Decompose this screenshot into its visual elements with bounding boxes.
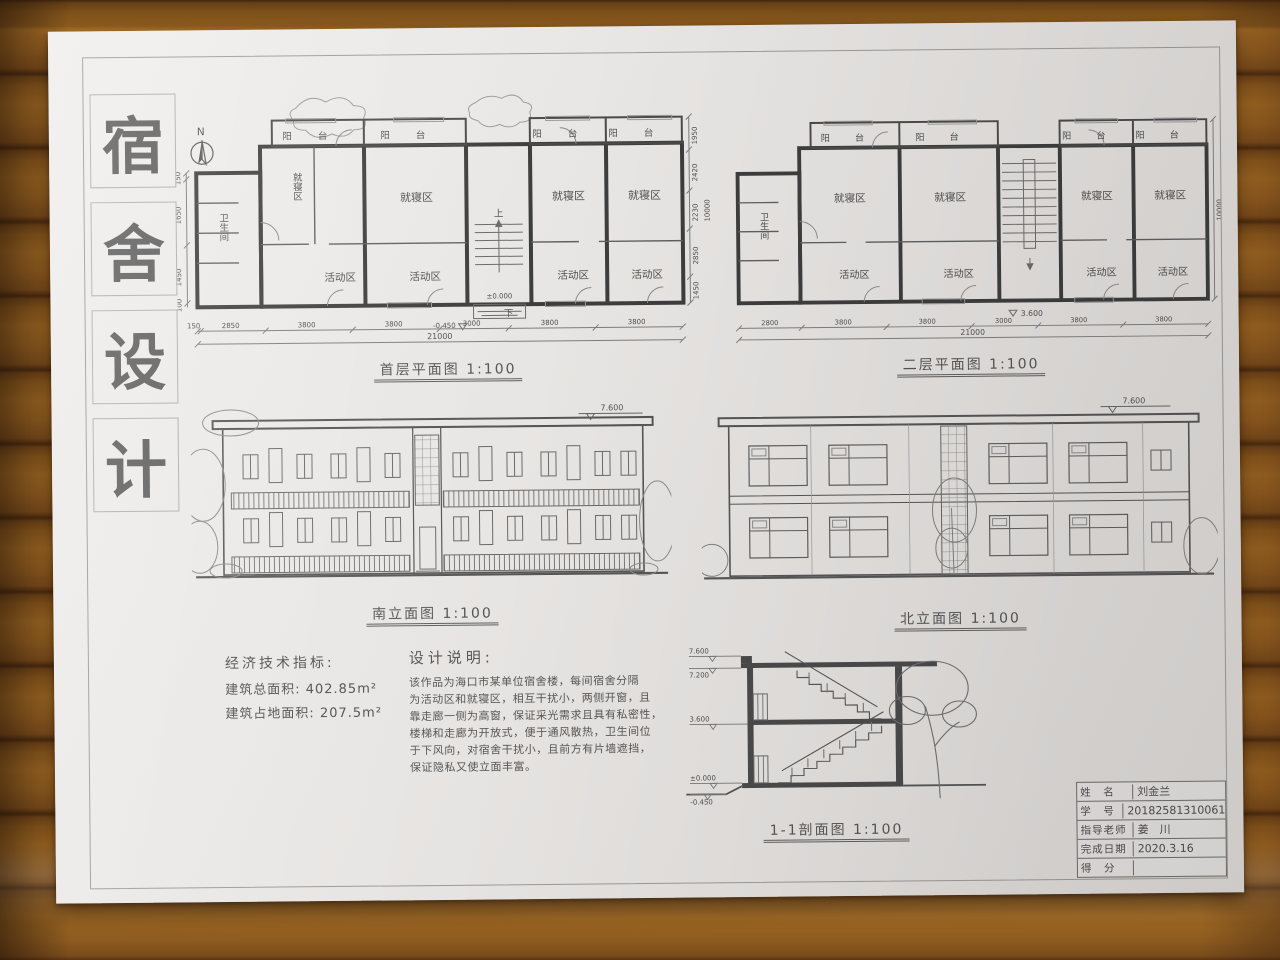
dim: 3800 (919, 318, 936, 326)
plan2-caption: 二层平面图 1:100 (720, 351, 1222, 376)
notes-heading: 设计说明: (409, 645, 689, 669)
second-floor-plan: 就寝区 就寝区 就寝区 就寝区 活动区 活动区 活动区 活动区 卫生间 阳台 阳… (718, 93, 1222, 350)
room-label-bath: 卫生间 (217, 213, 229, 242)
first-floor-plan-block: N (175, 90, 718, 381)
title-block-row: 姓 名 刘金兰 (1077, 781, 1225, 801)
dim: 3800 (385, 320, 403, 328)
north-elevation-block: 7.600 北立面图 1:100 (700, 388, 1218, 631)
section-block: 7.600 7.200 3.600 ±0.000 -0.450 1-1剖面图 1… (685, 626, 987, 841)
field-label: 完成日期 (1078, 841, 1134, 857)
dim-total-right: 10000 (1215, 199, 1221, 221)
room-label-balcony: 阳台 (380, 129, 451, 142)
sheet-border: 宿 舍 设 计 N (82, 46, 1228, 889)
dim: 150 (175, 172, 182, 185)
design-notes: 设计说明: 该作品为海口市某单位宿舍楼，每间宿舍分隔 为活动区和就寝区，相互干扰… (409, 645, 690, 777)
stair (1002, 159, 1057, 270)
dim: 1450 (692, 282, 700, 300)
room-label-sleep: 就寝区 (1081, 189, 1113, 202)
sheet-title-char: 宿 (89, 93, 176, 188)
compass-label: N (197, 126, 205, 138)
doors (260, 127, 664, 307)
field-value: 20182581310061 (1123, 803, 1225, 817)
field-label: 学 号 (1077, 803, 1123, 818)
dim: 150 (187, 322, 200, 330)
room-label-balcony: 阳台 (532, 127, 603, 140)
field-value: 2020.3.16 (1134, 841, 1226, 855)
room-label-sleep: 就寝区 (1154, 189, 1186, 202)
drawing-sheet: 宿 舍 设 计 N (48, 20, 1244, 903)
dim-total-right: 10000 (703, 199, 711, 221)
room-label-sleep: 就寝区 (400, 190, 433, 204)
dim: 1450 (175, 269, 183, 287)
second-floor-plan-block: 就寝区 就寝区 就寝区 就寝区 活动区 活动区 活动区 活动区 卫生间 阳台 阳… (718, 93, 1223, 376)
room-label-bath: 卫生间 (758, 212, 770, 241)
north-arrow-icon (191, 140, 213, 164)
room-label-activity: 活动区 (557, 270, 589, 282)
level-roof: 7.600 (600, 403, 623, 412)
level-mark (1009, 310, 1017, 316)
room-label-balcony: 阳台 (282, 130, 353, 143)
dim: 2800 (761, 319, 778, 327)
field-label: 指导老师 (1077, 822, 1133, 838)
section-level: ±0.000 (690, 774, 716, 782)
lower-windows (243, 509, 636, 547)
section-structure (741, 654, 938, 788)
title-block-row: 学 号 20182581310061 (1077, 800, 1225, 820)
dim: 2850 (222, 322, 240, 330)
stair-up-label: 上 (494, 208, 504, 219)
north-elevation: 7.600 (700, 388, 1218, 605)
dim: 1950 (691, 127, 699, 145)
plan-partitions (196, 143, 683, 264)
section-level: 7.200 (689, 671, 709, 679)
dim: 3800 (835, 318, 852, 326)
room-label-sleep: 就寝区 (552, 189, 585, 203)
south-elevation: 7.600 (190, 393, 672, 600)
indicator-line: 建筑总面积: 402.85m² (225, 678, 382, 699)
room-label-sleep: 就寝区 (834, 192, 866, 205)
room-label-activity: 活动区 (1158, 266, 1188, 278)
sheet-title-char: 舍 (90, 201, 177, 296)
notes-line: 保证隐私又使立面丰富。 (410, 757, 690, 777)
dim: 3800 (628, 318, 646, 326)
field-value: 刘金兰 (1133, 782, 1225, 799)
level-roof: 7.600 (1122, 396, 1145, 405)
stair-glazing (941, 426, 968, 574)
dim: 100 (175, 299, 183, 312)
room-label-activity: 活动区 (324, 272, 356, 284)
level-floor2: 3.600 (1021, 309, 1043, 318)
section-drawing: 7.600 7.200 3.600 ±0.000 -0.450 (685, 626, 987, 815)
room-label-sleep: 就寝区 (934, 191, 966, 204)
plan-partitions (738, 198, 1208, 260)
section-level: -0.450 (690, 798, 713, 806)
corridor-rails (753, 694, 768, 783)
field-value (1134, 866, 1226, 867)
title-block-row: 得 分 (1078, 857, 1226, 876)
dim: 2420 (691, 164, 699, 182)
south-elevation-block: 7.600 南立面图 1:100 (190, 393, 672, 626)
sheet-title: 宿 舍 设 计 (85, 93, 179, 526)
economic-indicators: 经济技术指标: 建筑总面积: 402.85m² 建筑占地面积: 207.5m² (225, 652, 382, 727)
dim: 2230 (692, 204, 700, 222)
dim-total: 21000 (427, 332, 453, 341)
stairs (777, 651, 884, 783)
level-zero: ±0.000 (486, 292, 512, 300)
title-block-row: 完成日期 2020.3.16 (1078, 838, 1226, 858)
room-label-activity: 活动区 (409, 271, 441, 283)
first-floor-plan: N (175, 90, 717, 355)
dim: 1650 (175, 207, 182, 225)
dim-lines (734, 116, 1218, 343)
notes-line: 于下风向，对宿舍干扰小，且前方有片墙遮挡， (410, 740, 690, 760)
room-label-activity: 活动区 (631, 269, 663, 281)
room-label-activity: 活动区 (839, 269, 869, 281)
field-label: 得 分 (1078, 860, 1134, 876)
dim: 3800 (1155, 315, 1172, 323)
plan1-caption: 首层平面图 1:100 (178, 356, 718, 381)
sheet-title-char: 计 (93, 417, 180, 512)
dim: 3000 (995, 317, 1012, 325)
dim-total: 21000 (960, 328, 985, 337)
room-label-activity: 活动区 (943, 268, 973, 280)
entry-down-label: 下 (504, 308, 514, 319)
section-level: 7.600 (689, 647, 709, 655)
field-value: 姜 川 (1133, 820, 1225, 837)
field-label: 姓 名 (1077, 784, 1133, 800)
room-label-balcony: 阳台 (608, 127, 679, 140)
section-level: 3.600 (689, 715, 709, 723)
room-label-sleep: 就寝区 (628, 188, 661, 202)
dim: 2850 (692, 247, 700, 265)
room-label-balcony: 阳台 (915, 131, 984, 144)
stair-glazing (415, 435, 440, 505)
dim: 3000 (463, 320, 481, 328)
entry-door-steps (413, 527, 443, 574)
room-label-balcony: 阳台 (821, 132, 890, 145)
room-label-sleep: 就寝区 (291, 172, 303, 201)
title-block: 姓 名 刘金兰 学 号 20182581310061 指导老师 姜 川 完成日期… (1076, 780, 1227, 877)
dim: 3800 (1070, 316, 1087, 324)
dim: 3800 (541, 319, 559, 327)
room-label-activity: 活动区 (1086, 267, 1116, 279)
south-elevation-caption: 南立面图 1:100 (192, 601, 672, 626)
indicators-heading: 经济技术指标: (225, 652, 382, 674)
title-block-row: 指导老师 姜 川 (1077, 819, 1225, 839)
level-mark (1100, 406, 1170, 413)
dim: 3800 (298, 321, 316, 329)
indicator-line: 建筑占地面积: 207.5m² (225, 702, 382, 723)
room-label-balcony: 阳台 (1135, 129, 1204, 142)
room-label-balcony: 阳台 (1062, 129, 1131, 142)
sheet-title-char: 设 (92, 309, 179, 404)
section-caption: 1-1剖面图 1:100 (686, 818, 986, 841)
